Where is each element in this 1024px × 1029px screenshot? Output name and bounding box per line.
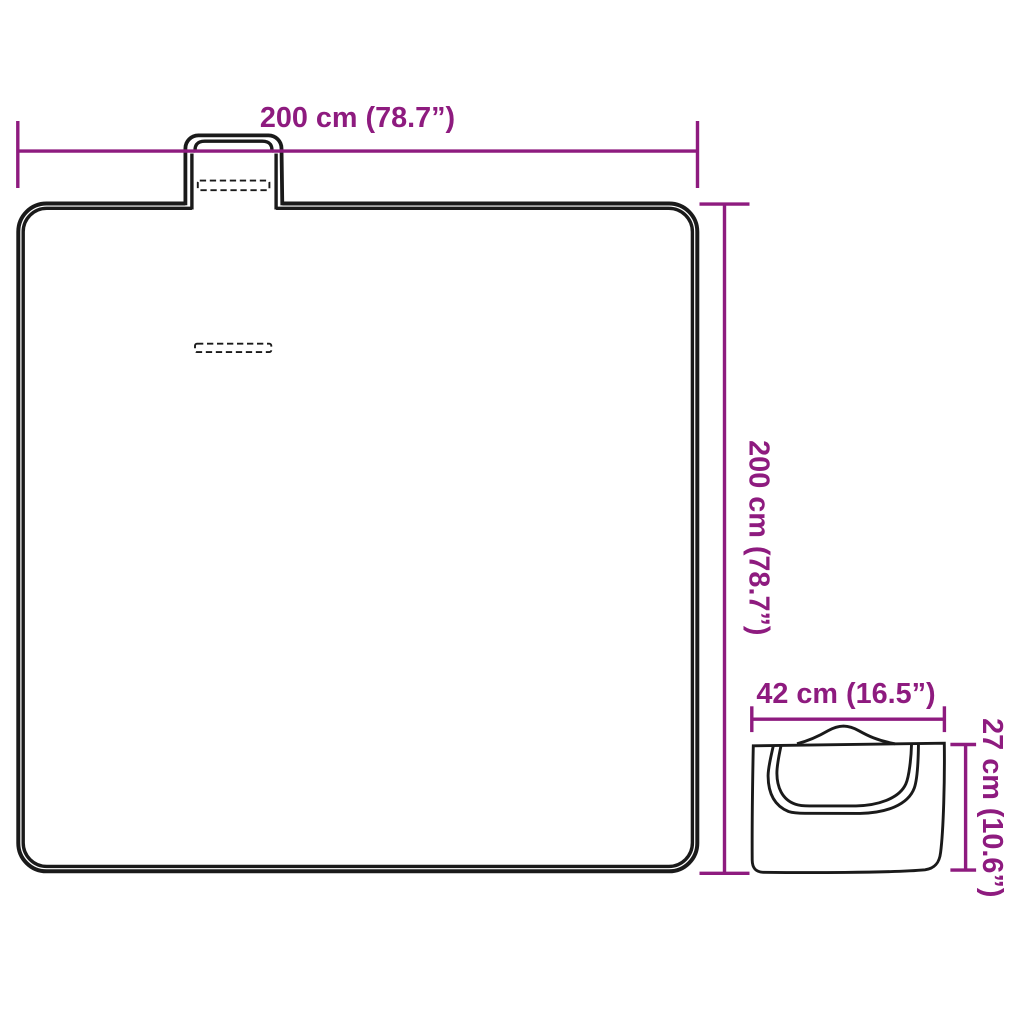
svg-text:42 cm (16.5”): 42 cm (16.5”) — [756, 678, 935, 710]
svg-text:200 cm (78.7”): 200 cm (78.7”) — [743, 440, 775, 635]
svg-text:27 cm (10.6”): 27 cm (10.6”) — [976, 718, 1008, 897]
svg-text:200 cm (78.7”): 200 cm (78.7”) — [260, 102, 455, 134]
